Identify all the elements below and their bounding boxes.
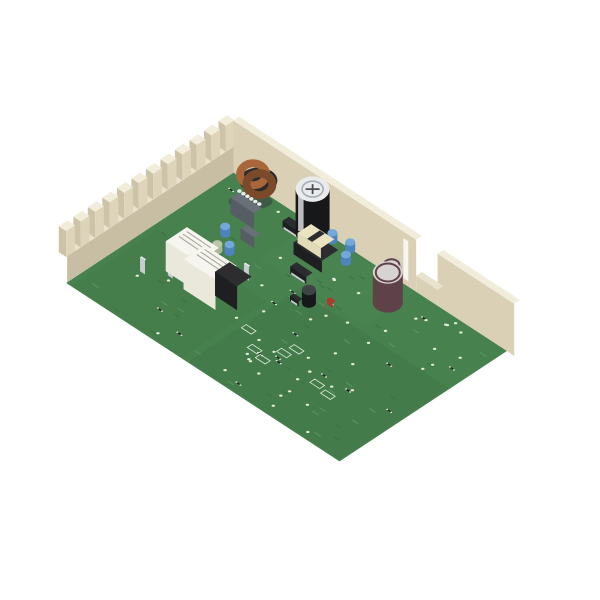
disc-capacitor-blue-1 <box>220 223 230 238</box>
disc-capacitor-blue-2 <box>225 241 235 256</box>
electrolytic-capacitor-medium <box>373 261 403 312</box>
disc-capacitor-blue-5 <box>341 251 351 266</box>
circuit-board-photo: Appliance control circuit board with rel… <box>0 0 600 600</box>
product-image-stage: Appliance control circuit board with rel… <box>0 0 600 600</box>
product-photo-figure: Appliance control circuit board with rel… <box>0 0 600 600</box>
electrolytic-capacitor-mini <box>302 285 316 308</box>
